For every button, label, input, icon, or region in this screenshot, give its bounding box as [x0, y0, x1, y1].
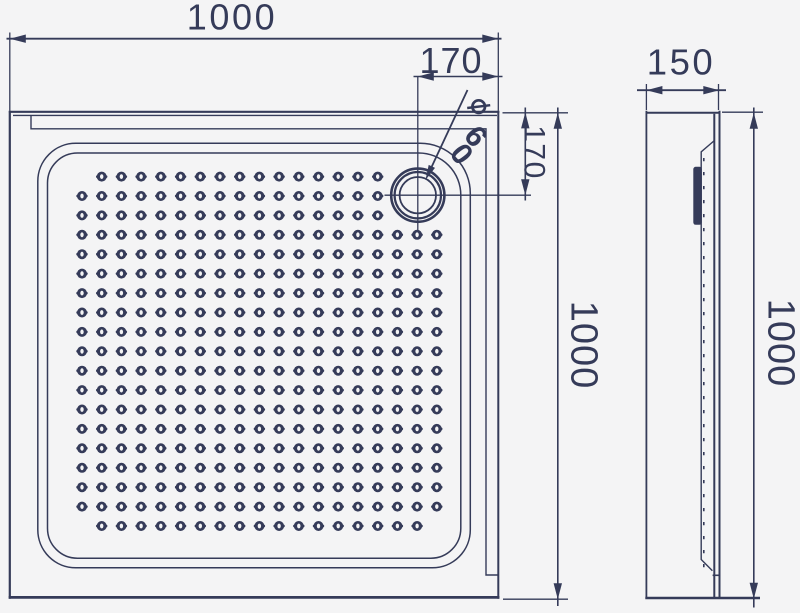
svg-text:150: 150: [647, 42, 715, 83]
svg-text:170: 170: [518, 125, 551, 180]
svg-text:170: 170: [419, 40, 482, 81]
svg-text:1000: 1000: [563, 301, 605, 390]
svg-text:1000: 1000: [187, 0, 278, 37]
svg-text:1000: 1000: [760, 299, 800, 388]
